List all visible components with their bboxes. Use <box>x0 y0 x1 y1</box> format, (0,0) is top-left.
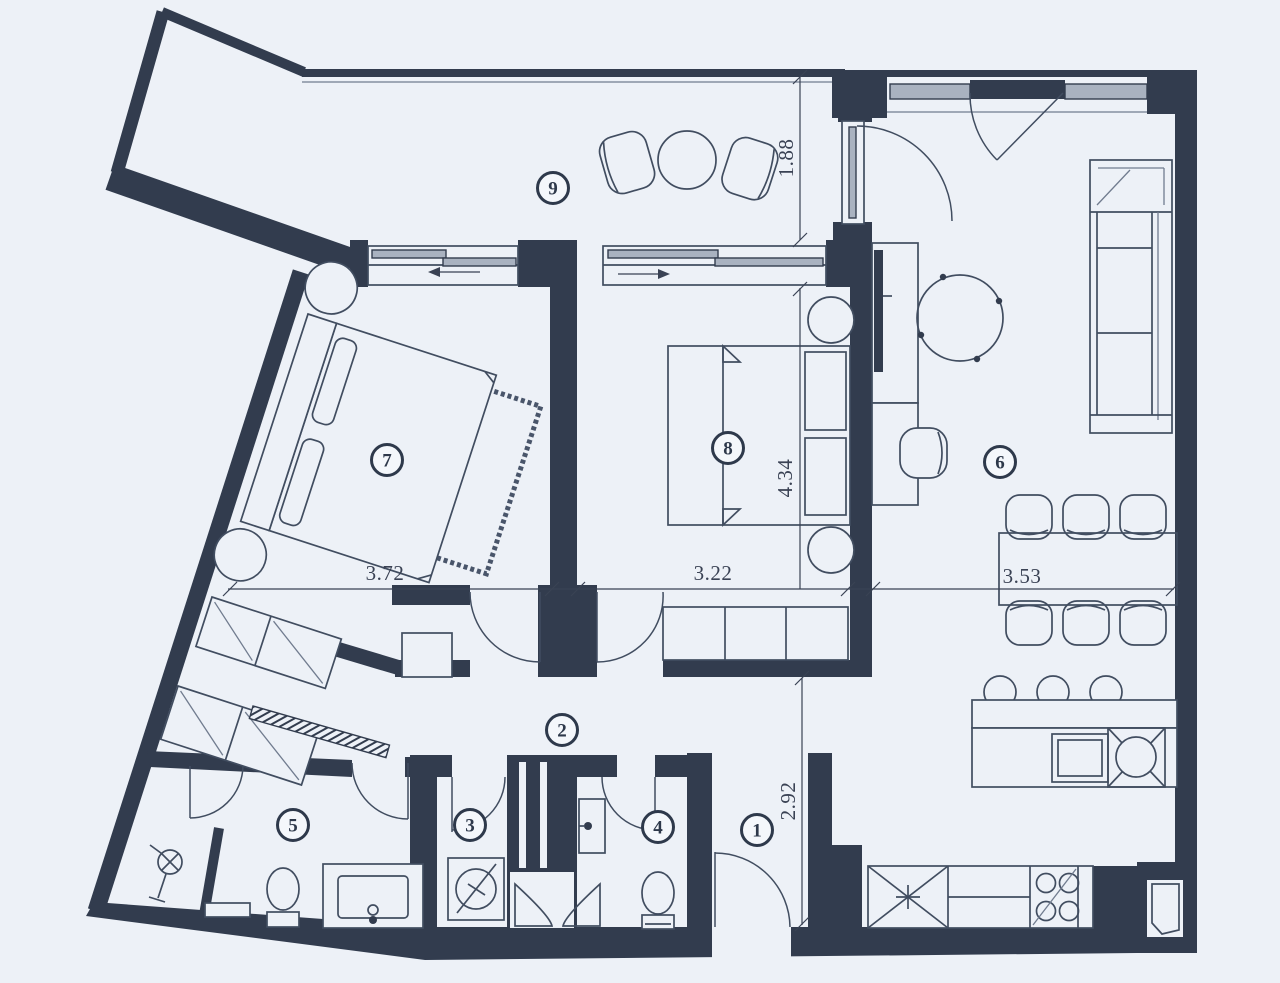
door-swing-icon <box>597 592 663 662</box>
pillar <box>838 72 872 122</box>
bedroom8-furniture <box>663 297 854 660</box>
wall-wc-entry <box>687 753 712 930</box>
room-badge-8: 8 <box>713 433 744 464</box>
door-swing-icon <box>715 853 790 927</box>
shaft-bottom <box>510 872 574 928</box>
terrace-glass-door <box>842 121 864 224</box>
room-number: 1 <box>752 821 762 842</box>
window-icon <box>890 84 970 99</box>
dimension-bedroom7-width: 3.72 <box>366 561 405 585</box>
vanity-sink-icon <box>323 864 423 928</box>
wall-segment <box>655 755 690 777</box>
terrace-left-wall <box>117 12 163 173</box>
kitchen-counter <box>868 866 1093 928</box>
room-badge-6: 6 <box>985 447 1016 478</box>
door-leaf <box>997 93 1063 160</box>
shaft-slit <box>540 762 547 868</box>
terrace-chair-icon <box>718 134 782 204</box>
hall-pillar <box>538 585 597 677</box>
wall-segment <box>437 755 452 777</box>
room-number: 5 <box>288 816 298 837</box>
hall-cabinet-icon <box>402 633 452 677</box>
right-wall <box>1175 70 1197 870</box>
wardrobe-icon <box>663 607 848 660</box>
round-table-icon <box>658 131 716 189</box>
room-badge-7: 7 <box>372 445 403 476</box>
window-sliding-bedroom7 <box>368 246 518 285</box>
window-icon <box>1065 84 1147 99</box>
toilet-icon <box>642 872 674 929</box>
room-badge-2: 2 <box>547 715 578 746</box>
top-wall-sill <box>887 70 1147 77</box>
wardrobe-icon <box>196 597 341 688</box>
pillow-icon <box>805 352 846 430</box>
door-swing-icon <box>970 93 997 160</box>
dimension-bedroom8-width: 3.22 <box>694 561 733 585</box>
room-badge-5: 5 <box>278 810 309 841</box>
tv-icon <box>874 250 883 372</box>
nightstand-icon <box>808 297 854 343</box>
window-sliding-bedroom8 <box>603 246 826 285</box>
dimension-terrace-depth: 1.88 <box>774 139 798 178</box>
wall-chunk <box>808 845 862 930</box>
shaft-slit <box>519 762 526 868</box>
door-swing-icon <box>470 592 540 662</box>
terrace-furniture <box>596 128 782 204</box>
dimension-bedroom8-depth: 4.34 <box>773 459 797 498</box>
dimension-entry-depth: 2.92 <box>776 782 800 821</box>
room-badge-4: 4 <box>643 812 674 843</box>
bedroom8-south-wall <box>663 660 850 677</box>
terrace-top-slant-wall <box>162 12 304 72</box>
kitchen-end-block <box>1093 866 1139 930</box>
kitchen-island-icon <box>972 700 1177 787</box>
bedroom7-south-wall <box>392 585 470 605</box>
room-number: 9 <box>548 179 558 200</box>
entry-door-threshold <box>970 80 1065 99</box>
room-badge-9: 9 <box>538 173 569 204</box>
door-swing-icon <box>352 763 408 819</box>
floor-plan-canvas: 3.72 3.22 3.53 1.88 4.34 2.92 1 2 3 4 5 … <box>0 0 1280 983</box>
room-badge-3: 3 <box>455 810 486 841</box>
room-number: 8 <box>723 439 733 460</box>
washing-machine-icon <box>448 858 504 920</box>
pillow-icon <box>805 438 846 515</box>
terrace-parapet <box>302 69 845 77</box>
room-number: 6 <box>995 453 1005 474</box>
dimension-living-width: 3.53 <box>1003 564 1042 588</box>
shower-partition <box>204 828 219 915</box>
shower-icon <box>149 845 182 902</box>
dining-chair-icon <box>1006 601 1052 645</box>
dining-chair-icon <box>1063 601 1109 645</box>
bath-shelf-icon <box>205 903 250 917</box>
room-number: 7 <box>382 451 392 472</box>
desk-chair-icon <box>900 428 947 478</box>
sofa-icon <box>1090 160 1172 433</box>
entry-door-opening <box>712 925 791 963</box>
pillar <box>826 240 872 287</box>
room-badge-1: 1 <box>742 815 773 846</box>
door-swing-icon <box>857 126 952 221</box>
door-swing-icon <box>190 766 243 818</box>
hanging-chair-icon <box>917 274 1003 362</box>
terrace-chair-icon <box>596 128 658 197</box>
wall-sink-icon <box>579 799 605 853</box>
wall-segment <box>577 755 617 777</box>
room-number: 3 <box>465 816 475 837</box>
toilet-icon <box>267 868 299 927</box>
room-number: 4 <box>653 818 663 839</box>
wall-bedroom8-living <box>850 287 872 677</box>
wall-bedroom7-bedroom8 <box>550 287 577 592</box>
nightstand-icon <box>808 527 854 573</box>
room-number: 2 <box>557 721 567 742</box>
dining-chair-icon <box>1120 601 1166 645</box>
terrace-diagonal-wall <box>110 177 352 262</box>
pillar <box>518 240 577 287</box>
laundry-fixtures <box>448 858 504 920</box>
west-wall <box>96 272 301 911</box>
